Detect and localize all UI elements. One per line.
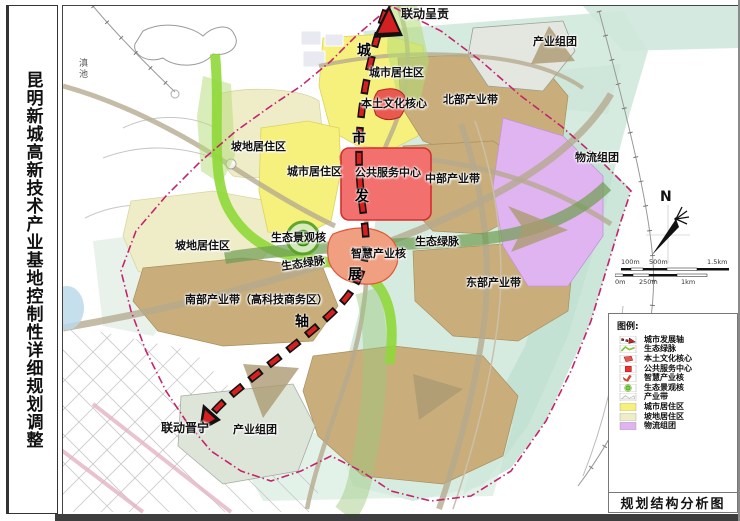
north-label: N [660, 189, 672, 205]
axis-char-1: 城 [357, 44, 371, 58]
legend-panel: 图例: 城市发展轴 生态绿脉 [608, 313, 738, 513]
scan-edge-bottom [55, 514, 740, 521]
scale-label: 1km [681, 279, 695, 286]
label-eco-landscape-core: 生态景观核 [271, 232, 326, 243]
label-smart-industry-core: 智慧产业核 [351, 248, 406, 259]
document-title-vertical: 昆明新城高新技术产业基地控制性详细规划调整 [24, 71, 41, 449]
label-dianchi: 滇池 [77, 58, 86, 80]
map-title-box: 规划结构分析图 [609, 492, 737, 512]
label-public-service-center: 公共服务中心 [355, 167, 421, 178]
label-liandong-jinning: 联动晋宁 [161, 422, 209, 434]
label-south-industry-belt: 南部产业带（高科技商务区） [185, 294, 328, 305]
axis-char-4: 展 [348, 268, 362, 282]
legend-item-culture-core: 本土文化核心 [617, 354, 733, 364]
scale-bar: 100m 500m 1.5km 0m 250m 1km [615, 259, 735, 287]
scale-label: 1.5km [707, 259, 727, 266]
axis-char-2: 市 [352, 132, 366, 146]
label-industry-cluster-ne: 产业组团 [533, 36, 577, 47]
slope-residential-swatch [617, 413, 639, 421]
scale-label: 500m [649, 259, 668, 266]
scale-bar-graphic [615, 267, 735, 279]
green-vein-icon [617, 345, 639, 353]
smart-core-icon [617, 374, 639, 382]
label-north-industry-belt: 北部产业带 [443, 94, 498, 105]
planning-map-page: 昆明新城高新技术产业基地控制性详细规划调整 [0, 0, 740, 521]
legend-item-logistics: 物流组团 [617, 421, 733, 431]
title-sidebar: 昆明新城高新技术产业基地控制性详细规划调整 [6, 5, 58, 514]
eco-core-icon [617, 384, 639, 392]
legend-body: 图例: 城市发展轴 生态绿脉 [609, 314, 737, 492]
axis-char-5: 轴 [295, 315, 309, 329]
label-urban-residential-w: 城市居住区 [287, 166, 342, 177]
culture-core-icon [617, 355, 639, 363]
legend-item-urban-residential: 城市居住区 [617, 402, 733, 412]
scale-label: 250m [639, 279, 658, 286]
legend-item-eco-vein: 生态绿脉 [617, 345, 733, 355]
label-culture-core: 本土文化核心 [361, 98, 427, 109]
legend-item-eco-core: 生态景观核 [617, 383, 733, 393]
axis-char-3: 发 [355, 190, 369, 204]
industry-belt-icon [617, 393, 639, 401]
map-title: 规划结构分析图 [620, 493, 725, 512]
label-urban-residential-n: 城市居住区 [369, 67, 424, 78]
label-east-industry-belt: 东部产业带 [466, 277, 521, 288]
legend-item-smart-core: 智慧产业核 [617, 373, 733, 383]
legend-item-industry-belt: 产业带 [617, 393, 733, 403]
label-middle-industry-belt: 中部产业带 [425, 173, 480, 184]
legend-item-service-center: 公共服务中心 [617, 364, 733, 374]
legend-heading: 图例: [617, 319, 733, 332]
label-slope-residential-w: 坡地居住区 [175, 240, 230, 251]
public-service-center-block [341, 148, 431, 220]
service-center-icon [617, 365, 639, 373]
legend-item-slope-residential: 坡地居住区 [617, 412, 733, 422]
compass-icon [646, 205, 690, 263]
axis-arrow-icon [617, 336, 639, 344]
label-slope-residential-n: 坡地居住区 [231, 141, 286, 152]
lake-outline [135, 25, 237, 65]
label-industry-cluster-s: 产业组团 [233, 424, 277, 435]
label-liandong-chenggong: 联动呈贡 [401, 8, 449, 20]
scale-label: 0m [615, 279, 625, 286]
label-eco-vein-east: 生态绿脉 [415, 236, 459, 247]
urban-residential-swatch [617, 403, 639, 411]
label-logistics-cluster: 物流组团 [575, 152, 619, 163]
logistics-swatch [617, 422, 639, 430]
urban-residential-west [259, 121, 341, 236]
scale-label: 100m [621, 259, 640, 266]
